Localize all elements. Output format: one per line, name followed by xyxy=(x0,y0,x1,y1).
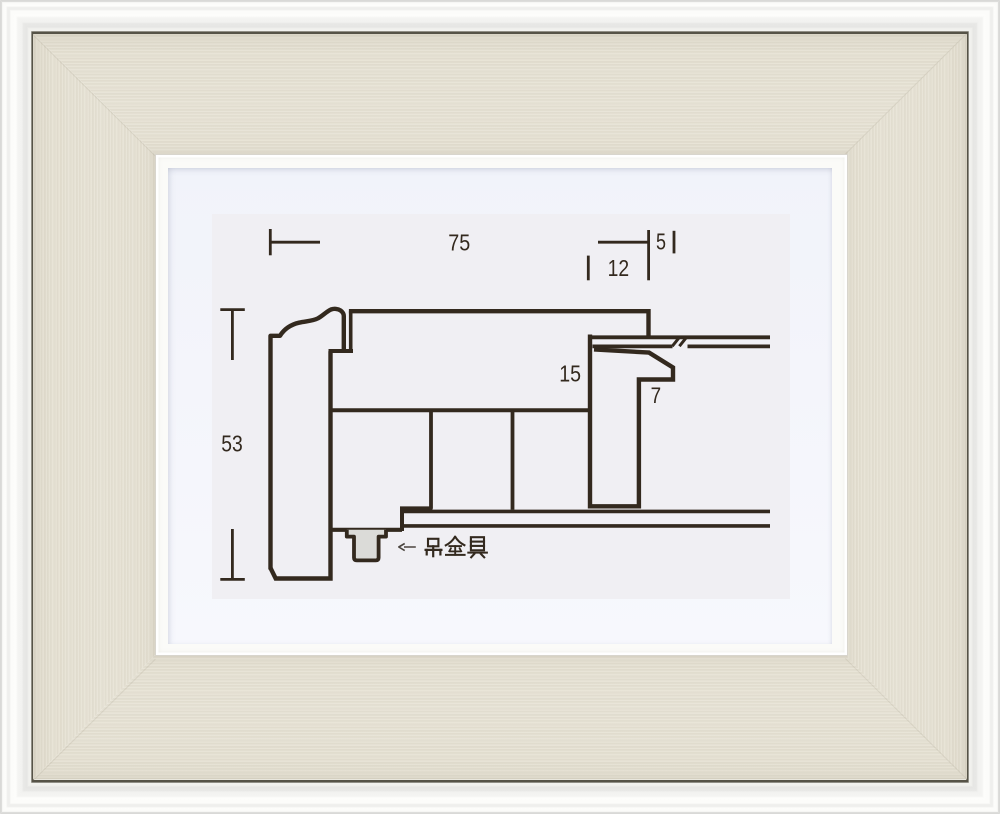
svg-text:7: 7 xyxy=(651,383,662,408)
svg-text:12: 12 xyxy=(608,255,630,281)
svg-text:5: 5 xyxy=(656,229,666,255)
svg-text:75: 75 xyxy=(448,229,470,255)
svg-text:53: 53 xyxy=(221,430,243,456)
svg-text:15: 15 xyxy=(559,360,581,386)
